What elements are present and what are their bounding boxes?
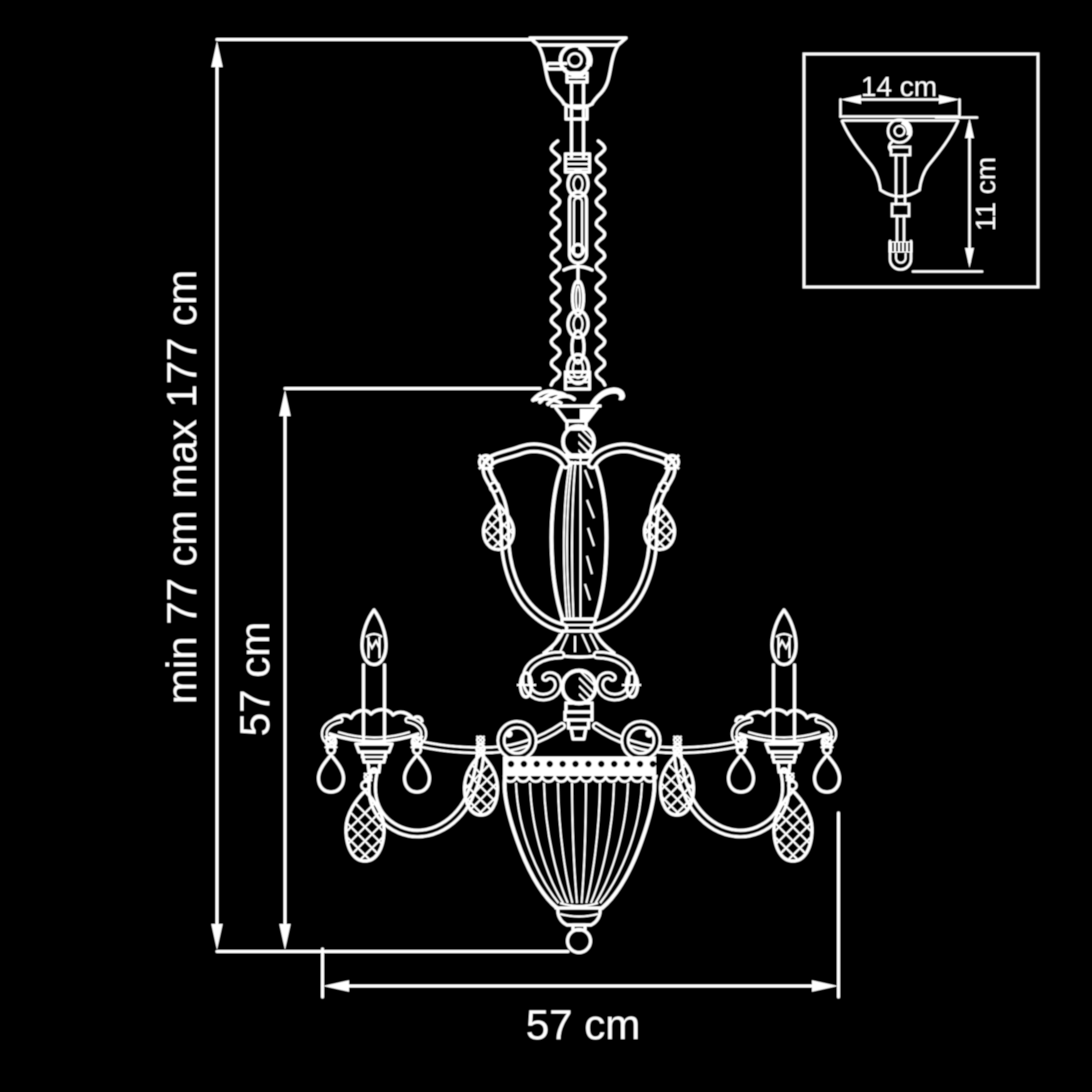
svg-text:57 cm: 57 cm <box>526 1001 640 1048</box>
svg-text:14 cm: 14 cm <box>861 71 937 102</box>
svg-text:11 cm: 11 cm <box>970 157 1001 231</box>
svg-text:57 cm: 57 cm <box>231 622 278 736</box>
svg-text:min 77 cm max 177 cm: min 77 cm max 177 cm <box>158 270 205 704</box>
